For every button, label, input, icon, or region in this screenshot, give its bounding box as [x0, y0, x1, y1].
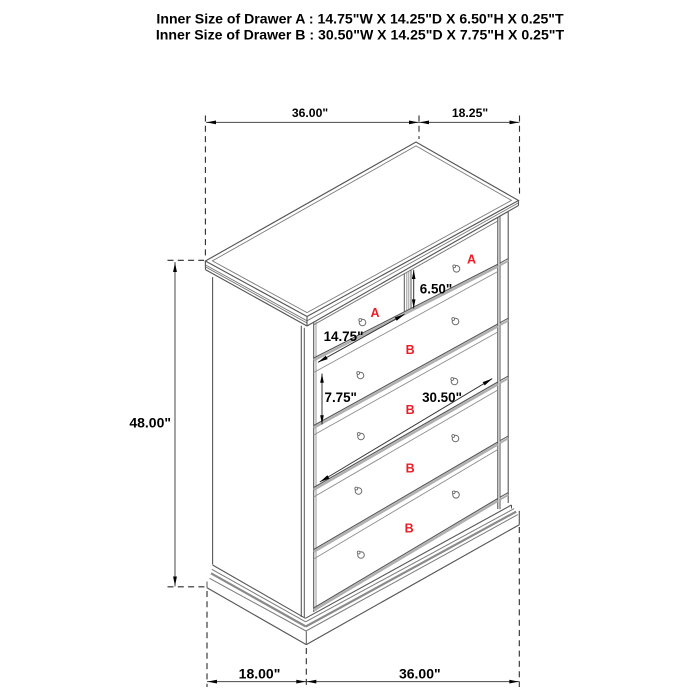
svg-text:B: B	[406, 343, 415, 357]
svg-text:7.75": 7.75"	[325, 390, 357, 405]
svg-text:B: B	[406, 403, 415, 417]
svg-text:14.75": 14.75"	[324, 329, 364, 344]
svg-text:18.00": 18.00"	[239, 665, 281, 681]
svg-text:36.00": 36.00"	[292, 106, 328, 120]
svg-text:Inner Size of Drawer B : 30.50: Inner Size of Drawer B : 30.50"W X 14.25…	[156, 27, 565, 43]
svg-text:A: A	[370, 306, 379, 320]
svg-text:48.00": 48.00"	[129, 415, 171, 431]
svg-text:A: A	[467, 253, 476, 267]
svg-text:36.00": 36.00"	[399, 665, 441, 681]
svg-text:Inner Size of Drawer A : 14.75: Inner Size of Drawer A : 14.75"W X 14.25…	[156, 11, 564, 27]
svg-text:18.25": 18.25"	[452, 106, 488, 120]
svg-text:30.50": 30.50"	[422, 390, 462, 405]
svg-text:B: B	[405, 522, 414, 536]
svg-text:6.50": 6.50"	[420, 282, 452, 297]
svg-text:B: B	[406, 462, 415, 476]
